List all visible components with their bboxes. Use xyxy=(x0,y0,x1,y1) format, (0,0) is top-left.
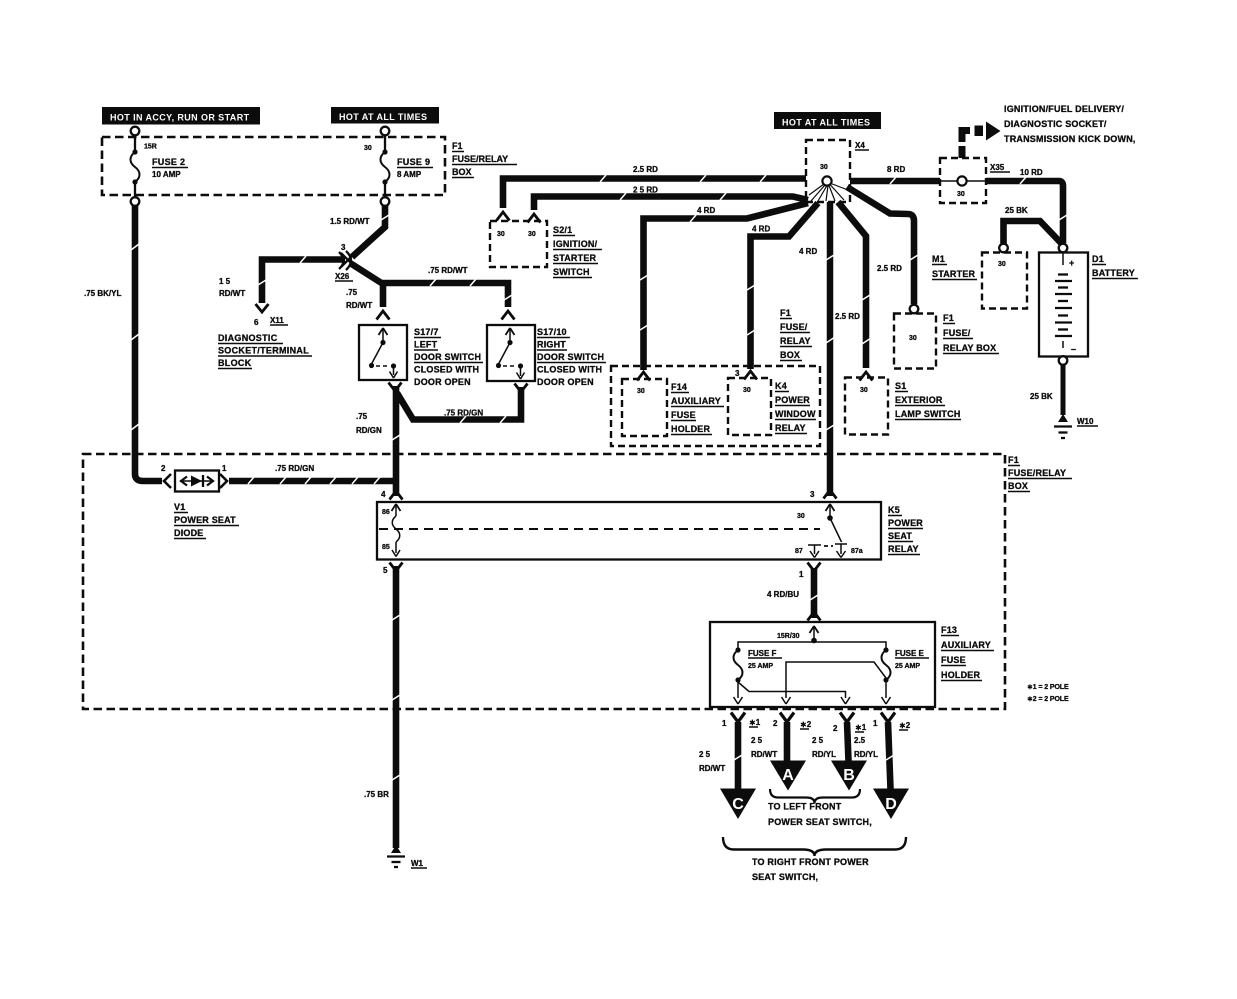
svg-text:FUSE/RELAY: FUSE/RELAY xyxy=(1008,468,1066,478)
svg-text:SWITCH: SWITCH xyxy=(553,267,590,277)
svg-text:CLOSED WITH: CLOSED WITH xyxy=(537,365,602,375)
svg-text:3: 3 xyxy=(341,243,346,252)
svg-text:TO RIGHT FRONT POWER: TO RIGHT FRONT POWER xyxy=(752,857,869,867)
svg-text:RIGHT: RIGHT xyxy=(537,340,566,350)
svg-text:85: 85 xyxy=(382,544,390,551)
svg-text:2.5 RD: 2.5 RD xyxy=(633,165,658,174)
svg-text:X35: X35 xyxy=(990,163,1005,172)
svg-text:2.5: 2.5 xyxy=(854,736,866,745)
svg-text:WINDOW: WINDOW xyxy=(775,409,816,419)
svg-text:SEAT SWITCH,: SEAT SWITCH, xyxy=(752,872,818,882)
svg-text:30: 30 xyxy=(998,261,1006,268)
svg-text:1.5 RD/WT: 1.5 RD/WT xyxy=(330,217,370,226)
svg-text:1 5: 1 5 xyxy=(219,277,231,286)
svg-text:∗1 = 2 POLE: ∗1 = 2 POLE xyxy=(1027,684,1069,691)
svg-text:4 RD: 4 RD xyxy=(799,247,817,256)
svg-text:1: 1 xyxy=(799,570,804,579)
svg-text:AUXILIARY: AUXILIARY xyxy=(671,396,721,406)
svg-text:BLOCK: BLOCK xyxy=(218,358,252,368)
svg-text:6: 6 xyxy=(254,318,259,327)
svg-text:DOOR SWITCH: DOOR SWITCH xyxy=(414,352,481,362)
svg-text:∗1: ∗1 xyxy=(749,718,761,727)
svg-text:87a: 87a xyxy=(851,548,863,555)
svg-text:SOCKET/TERMINAL: SOCKET/TERMINAL xyxy=(218,346,309,356)
svg-text:DOOR OPEN: DOOR OPEN xyxy=(537,377,594,387)
svg-text:4 RD: 4 RD xyxy=(697,206,715,215)
svg-text:8 RD: 8 RD xyxy=(887,165,905,174)
svg-text:TRANSMISSION KICK DOWN,: TRANSMISSION KICK DOWN, xyxy=(1004,134,1136,144)
svg-text:BOX: BOX xyxy=(780,350,800,360)
svg-text:RD/GN: RD/GN xyxy=(356,426,382,435)
svg-text:DOOR OPEN: DOOR OPEN xyxy=(414,377,471,387)
svg-text:F1: F1 xyxy=(780,308,791,318)
svg-text:2: 2 xyxy=(161,464,166,473)
svg-text:RELAY: RELAY xyxy=(775,423,806,433)
svg-text:RD/WT: RD/WT xyxy=(751,750,777,759)
svg-text:D1: D1 xyxy=(1092,254,1104,264)
svg-text:LEFT: LEFT xyxy=(414,340,438,350)
svg-text:–: – xyxy=(1071,344,1076,354)
svg-text:F1: F1 xyxy=(452,141,463,151)
svg-text:IGNITION/FUEL DELIVERY/: IGNITION/FUEL DELIVERY/ xyxy=(1004,104,1124,114)
svg-text:K4: K4 xyxy=(775,381,787,391)
svg-text:15R/30: 15R/30 xyxy=(777,633,800,640)
svg-text:8 AMP: 8 AMP xyxy=(397,170,422,179)
svg-text:HOT AT ALL TIMES: HOT AT ALL TIMES xyxy=(782,118,870,128)
svg-text:2 5 RD: 2 5 RD xyxy=(633,186,658,195)
svg-text:F13: F13 xyxy=(941,625,957,635)
svg-text:25 AMP: 25 AMP xyxy=(895,663,920,670)
svg-text:2: 2 xyxy=(773,719,778,728)
svg-text:BOX: BOX xyxy=(452,167,472,177)
svg-text:LAMP SWITCH: LAMP SWITCH xyxy=(895,409,961,419)
svg-text:30: 30 xyxy=(797,513,805,520)
svg-text:S17/10: S17/10 xyxy=(537,327,567,337)
svg-text:30: 30 xyxy=(497,231,505,238)
svg-text:HOLDER: HOLDER xyxy=(941,670,981,680)
svg-text:3: 3 xyxy=(735,369,740,378)
svg-text:.75: .75 xyxy=(356,412,368,421)
svg-text:86: 86 xyxy=(382,509,390,516)
svg-text:30: 30 xyxy=(860,387,868,394)
svg-text:BOX: BOX xyxy=(1008,481,1028,491)
svg-text:DOOR SWITCH: DOOR SWITCH xyxy=(537,352,604,362)
svg-text:FUSE/: FUSE/ xyxy=(780,322,808,332)
svg-text:RD/WT: RD/WT xyxy=(346,301,372,310)
svg-text:2.5 RD: 2.5 RD xyxy=(877,264,902,273)
svg-text:1: 1 xyxy=(222,464,227,473)
svg-text:AUXILIARY: AUXILIARY xyxy=(941,640,991,650)
svg-text:RD/YL: RD/YL xyxy=(812,750,836,759)
svg-text:30: 30 xyxy=(528,231,536,238)
svg-text:.75 BR: .75 BR xyxy=(364,790,389,799)
svg-text:DIAGNOSTIC SOCKET/: DIAGNOSTIC SOCKET/ xyxy=(1004,119,1107,129)
svg-text:X11: X11 xyxy=(270,316,284,325)
svg-text:1: 1 xyxy=(722,719,727,728)
svg-text:10 RD: 10 RD xyxy=(1020,168,1043,177)
svg-text:.75 RD/WT: .75 RD/WT xyxy=(428,266,468,275)
svg-text:30: 30 xyxy=(364,145,372,152)
svg-text:S1: S1 xyxy=(895,381,906,391)
svg-text:2 5: 2 5 xyxy=(751,736,763,745)
svg-text:2.5 RD: 2.5 RD xyxy=(835,312,860,321)
svg-text:2 5: 2 5 xyxy=(812,736,824,745)
svg-text:POWER SEAT: POWER SEAT xyxy=(174,515,236,525)
svg-text:15R: 15R xyxy=(144,144,157,151)
svg-text:25 BK: 25 BK xyxy=(1005,206,1028,215)
svg-text:FUSE 2: FUSE 2 xyxy=(152,157,185,167)
svg-text:.75: .75 xyxy=(346,288,358,297)
svg-text:FUSE: FUSE xyxy=(671,410,696,420)
svg-text:87: 87 xyxy=(795,548,803,555)
svg-text:HOT IN ACCY, RUN OR START: HOT IN ACCY, RUN OR START xyxy=(110,113,250,123)
svg-text:C: C xyxy=(732,796,744,813)
svg-text:W10: W10 xyxy=(1077,417,1094,426)
svg-text:.75 BK/YL: .75 BK/YL xyxy=(84,289,121,298)
svg-text:∗2: ∗2 xyxy=(800,720,812,729)
svg-text:FUSE/: FUSE/ xyxy=(943,328,971,338)
svg-text:∗1: ∗1 xyxy=(855,723,867,732)
svg-text:1: 1 xyxy=(873,719,878,728)
svg-text:SEAT: SEAT xyxy=(888,531,912,541)
svg-text:POWER SEAT SWITCH,: POWER SEAT SWITCH, xyxy=(768,817,872,827)
svg-text:FUSE: FUSE xyxy=(941,655,966,665)
svg-text:2 5: 2 5 xyxy=(699,750,711,759)
svg-text:B: B xyxy=(843,767,855,784)
svg-text:30: 30 xyxy=(743,387,751,394)
svg-text:RELAY BOX: RELAY BOX xyxy=(943,343,996,353)
svg-text:RD/YL: RD/YL xyxy=(854,750,878,759)
svg-text:M1: M1 xyxy=(932,254,945,264)
svg-text:∗2 = 2 POLE: ∗2 = 2 POLE xyxy=(1027,696,1069,703)
svg-text:30: 30 xyxy=(637,388,645,395)
svg-text:FUSE E: FUSE E xyxy=(895,649,925,658)
svg-text:RD/WT: RD/WT xyxy=(219,289,245,298)
svg-text:S2/1: S2/1 xyxy=(553,225,572,235)
svg-text:+: + xyxy=(1069,258,1074,268)
svg-text:POWER: POWER xyxy=(775,395,810,405)
svg-text:V1: V1 xyxy=(174,502,185,512)
svg-text:4 RD/BU: 4 RD/BU xyxy=(767,590,799,599)
svg-text:25 AMP: 25 AMP xyxy=(748,663,773,670)
svg-text:3: 3 xyxy=(810,490,815,499)
svg-text:30: 30 xyxy=(820,164,828,171)
svg-text:STARTER: STARTER xyxy=(553,253,597,263)
svg-text:∗2: ∗2 xyxy=(899,721,911,730)
svg-text:2: 2 xyxy=(833,724,838,733)
svg-text:D: D xyxy=(885,796,897,813)
svg-text:K5: K5 xyxy=(888,505,900,515)
svg-text:4 RD: 4 RD xyxy=(752,225,770,234)
svg-text:HOT AT ALL TIMES: HOT AT ALL TIMES xyxy=(339,112,427,122)
svg-text:F1: F1 xyxy=(1008,455,1019,465)
svg-text:FUSE 9: FUSE 9 xyxy=(397,157,430,167)
svg-text:F1: F1 xyxy=(943,313,954,323)
svg-text:5: 5 xyxy=(383,566,388,575)
svg-text:IGNITION/: IGNITION/ xyxy=(553,239,598,249)
svg-text:10 AMP: 10 AMP xyxy=(152,170,181,179)
svg-text:DIAGNOSTIC: DIAGNOSTIC xyxy=(218,333,278,343)
svg-text:.75 RD/GN: .75 RD/GN xyxy=(275,464,314,473)
svg-text:DIODE: DIODE xyxy=(174,528,204,538)
svg-text:RD/WT: RD/WT xyxy=(699,764,725,773)
svg-text:30: 30 xyxy=(957,191,965,198)
svg-text:BATTERY: BATTERY xyxy=(1092,268,1135,278)
svg-text:30: 30 xyxy=(909,335,917,342)
svg-text:W1: W1 xyxy=(411,859,424,868)
svg-text:FUSE F: FUSE F xyxy=(748,649,777,658)
svg-text:STARTER: STARTER xyxy=(932,269,976,279)
svg-text:X4: X4 xyxy=(855,141,865,150)
svg-text:TO LEFT FRONT: TO LEFT FRONT xyxy=(768,802,842,812)
svg-text:25 BK: 25 BK xyxy=(1030,392,1053,401)
svg-text:X26: X26 xyxy=(335,272,350,281)
svg-text:FUSE/RELAY: FUSE/RELAY xyxy=(452,154,508,164)
svg-text:RELAY: RELAY xyxy=(888,544,919,554)
svg-text:RELAY: RELAY xyxy=(780,336,811,346)
svg-text:POWER: POWER xyxy=(888,518,923,528)
svg-text:4: 4 xyxy=(381,490,386,499)
svg-text:F14: F14 xyxy=(671,382,687,392)
svg-text:EXTERIOR: EXTERIOR xyxy=(895,395,943,405)
svg-text:A: A xyxy=(782,767,794,784)
svg-text:S17/7: S17/7 xyxy=(414,327,439,337)
svg-text:HOLDER: HOLDER xyxy=(671,424,711,434)
svg-text:.75 RD/GN: .75 RD/GN xyxy=(444,409,483,418)
svg-text:CLOSED WITH: CLOSED WITH xyxy=(414,365,479,375)
